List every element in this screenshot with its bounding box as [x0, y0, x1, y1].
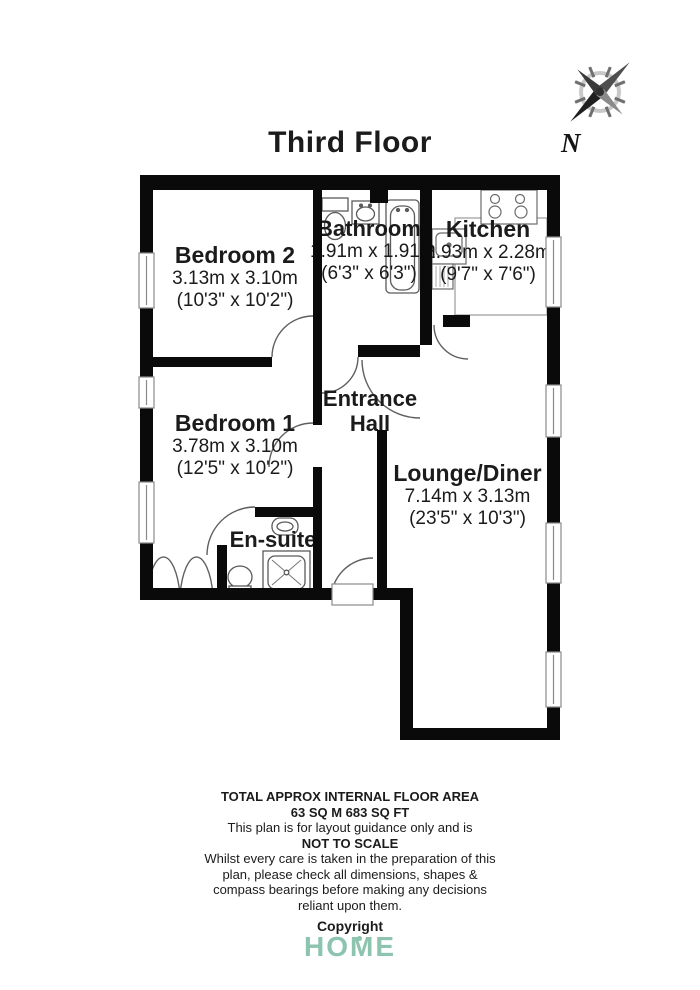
wall-bedroom2-bottom: [140, 357, 272, 367]
room-name: Bedroom 2: [150, 242, 320, 268]
home-logo-text: HOME: [304, 931, 396, 962]
window: [139, 482, 154, 543]
wall-outer-bottom-left: [373, 588, 413, 600]
room-label-entrance-hall: Entrance Hall: [317, 386, 423, 436]
disclaimer-line: Whilst every care is taken in the prepar…: [110, 851, 590, 867]
room-name: Hall: [317, 411, 423, 436]
wall-outer-top: [140, 175, 560, 190]
room-label-lounge-diner: Lounge/Diner 7.14m x 3.13m (23'5" x 10'3…: [385, 460, 550, 530]
wall-tub-alcove-stub: [370, 190, 388, 203]
wall-bathroom-bottom: [358, 345, 420, 357]
ensuite-toilet-icon: [228, 566, 252, 593]
room-name: En-suite: [223, 527, 323, 552]
footer-disclaimer: TOTAL APPROX INTERNAL FLOOR AREA 63 SQ M…: [110, 789, 590, 959]
disclaimer-line: compass bearings before making any decis…: [110, 882, 590, 898]
window: [546, 652, 561, 707]
compass-north-label: N: [560, 128, 582, 158]
floor-area-value: 63 SQ M 683 SQ FT: [110, 805, 590, 821]
room-name: Bathroom: [310, 216, 428, 241]
room-imperial-dims: (9'7" x 7'6"): [425, 264, 551, 286]
room-label-kitchen: Kitchen 2.93m x 2.28m (9'7" x 7'6"): [425, 216, 551, 286]
room-name: Lounge/Diner: [385, 460, 550, 486]
room-label-bedroom-1: Bedroom 1 3.78m x 3.10m (12'5" x 10'2"): [150, 410, 320, 480]
room-metric-dims: 7.14m x 3.13m: [385, 486, 550, 508]
entrance-door-leaf: [332, 584, 373, 605]
wardrobe-door-arc: [180, 557, 213, 595]
disclaimer-line: plan, please check all dimensions, shape…: [110, 867, 590, 883]
wall-outer-bottom-left: [140, 588, 332, 600]
wall-bedroom2-bottom: [313, 357, 322, 367]
floorplan-page: Third Floor N Bedroom 2 3.13m x 3.10m (1…: [0, 0, 700, 990]
room-metric-dims: 3.78m x 3.10m: [150, 436, 320, 458]
room-imperial-dims: (12'5" x 10'2"): [150, 458, 320, 480]
wall-outer-bottom-right: [400, 728, 560, 740]
room-label-bedroom-2: Bedroom 2 3.13m x 3.10m (10'3" x 10'2"): [150, 242, 320, 312]
room-name: Kitchen: [425, 216, 551, 242]
window: [139, 377, 154, 408]
compass-rose-icon: N: [545, 40, 645, 158]
room-imperial-dims: (10'3" x 10'2"): [150, 290, 320, 312]
room-imperial-dims: (6'3" x 6'3"): [310, 263, 428, 285]
room-metric-dims: 2.93m x 2.28m: [425, 242, 551, 264]
home-logo: HOME: [304, 939, 396, 955]
room-metric-dims: 3.13m x 3.10m: [150, 268, 320, 290]
room-name: Entrance: [317, 386, 423, 411]
room-metric-dims: 1.91m x 1.91m: [310, 241, 428, 263]
kitchen-door-arc: [434, 325, 468, 359]
floor-area-heading: TOTAL APPROX INTERNAL FLOOR AREA: [110, 789, 590, 805]
window: [546, 385, 561, 437]
disclaimer-line: This plan is for layout guidance only an…: [110, 820, 590, 836]
window: [546, 523, 561, 583]
shower-icon: [263, 551, 310, 594]
disclaimer-line: reliant upon them.: [110, 898, 590, 914]
wall-ensuite-left: [217, 545, 227, 600]
room-imperial-dims: (23'5" x 10'3"): [385, 508, 550, 530]
room-name: Bedroom 1: [150, 410, 320, 436]
entrance-door-arc: [331, 558, 373, 600]
bedroom2-door-arc: [272, 316, 313, 357]
home-logo-dot: [357, 936, 362, 941]
wall-kitchen-stub: [443, 315, 470, 327]
wardrobe-door-arc: [147, 557, 180, 595]
room-label-bathroom: Bathroom 1.91m x 1.91m (6'3" x 6'3"): [310, 216, 428, 285]
not-to-scale: NOT TO SCALE: [110, 836, 590, 852]
wall-lounge-step: [400, 600, 413, 740]
room-label-en-suite: En-suite: [223, 527, 323, 552]
wall-ensuite-top: [255, 507, 322, 517]
